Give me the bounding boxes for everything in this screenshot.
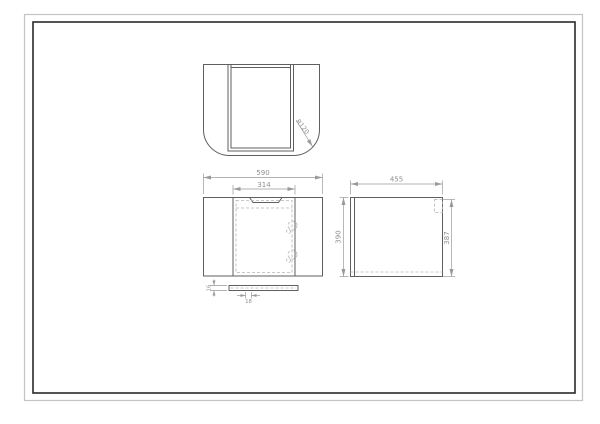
front-view-outline [204, 198, 323, 277]
inner-frame [33, 22, 575, 393]
top-view: R120 [203, 65, 319, 156]
depth-label: 455 [390, 176, 403, 184]
top-view-carcass-outer [228, 65, 294, 152]
radius-label: R120 [294, 118, 311, 136]
drawing-sheet: R120 590 314 [0, 0, 600, 424]
height-right-label: 387 [443, 231, 451, 244]
technical-drawing: R120 590 314 [0, 0, 600, 424]
side-view: 455 390 387 [335, 176, 456, 277]
dimension-strip-width: 18 [237, 292, 260, 305]
hinge-cup-bottom [287, 259, 291, 263]
dimension-strip-thickness: 16 [207, 280, 228, 297]
front-view: 590 314 16 [204, 169, 323, 305]
strip-detail: 16 18 [207, 280, 299, 306]
side-view-outline [351, 198, 443, 277]
door-width-label: 314 [257, 181, 271, 189]
side-hidden-rail [435, 200, 443, 213]
dimension-height-left: 390 [335, 198, 349, 277]
radius-annotation: R120 [294, 118, 312, 147]
height-left-label: 390 [335, 230, 343, 243]
hinge-cup-top [287, 230, 291, 234]
dimension-door-width: 314 [233, 181, 295, 195]
hinge-circle-bottom [288, 250, 297, 259]
outer-frame [25, 15, 583, 401]
top-view-outline [203, 65, 319, 156]
strip-width-label: 18 [245, 299, 252, 305]
overall-width-label: 590 [256, 169, 269, 177]
hinge-circle-top [288, 221, 297, 230]
door-hidden-outline [236, 201, 292, 273]
dimension-depth: 455 [351, 176, 443, 195]
handle-notch [250, 198, 283, 203]
dimension-height-right: 387 [443, 200, 455, 277]
strip-thickness-label: 16 [207, 285, 213, 292]
top-view-carcass-inner [231, 65, 291, 149]
